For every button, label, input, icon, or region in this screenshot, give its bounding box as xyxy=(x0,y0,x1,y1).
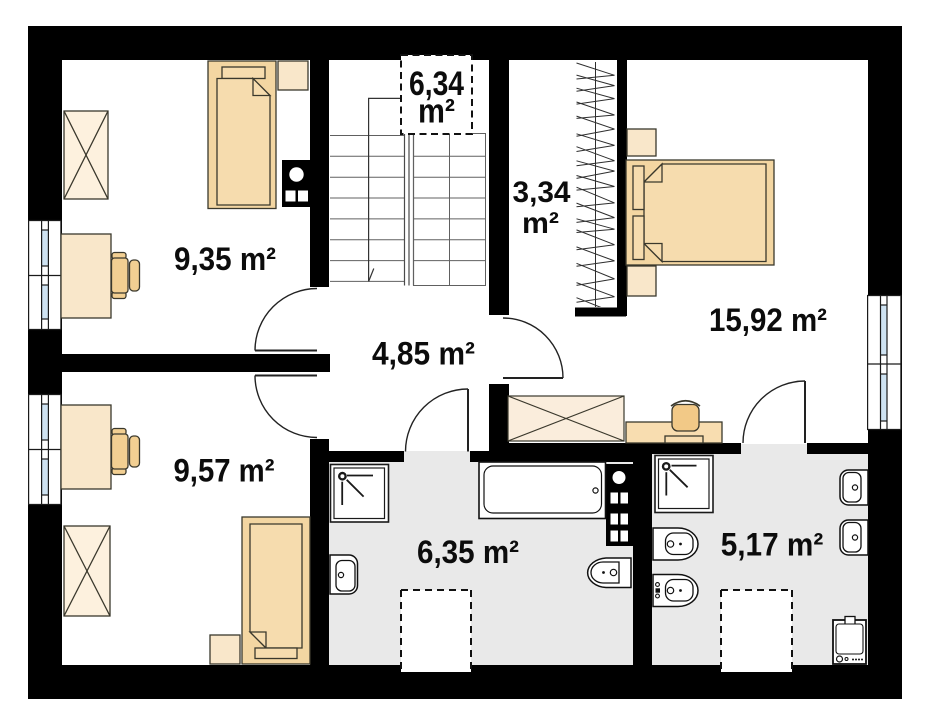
svg-text:6,35 m²: 6,35 m² xyxy=(417,534,519,570)
svg-text:m²: m² xyxy=(522,207,559,240)
svg-text:15,92 m²: 15,92 m² xyxy=(709,302,827,338)
svg-text:5,17 m²: 5,17 m² xyxy=(721,527,824,563)
svg-text:m²: m² xyxy=(418,93,455,131)
svg-text:3,34: 3,34 xyxy=(513,176,572,209)
svg-text:9,57 m²: 9,57 m² xyxy=(174,453,275,489)
svg-text:4,85 m²: 4,85 m² xyxy=(372,336,475,372)
svg-text:9,35 m²: 9,35 m² xyxy=(174,241,276,277)
